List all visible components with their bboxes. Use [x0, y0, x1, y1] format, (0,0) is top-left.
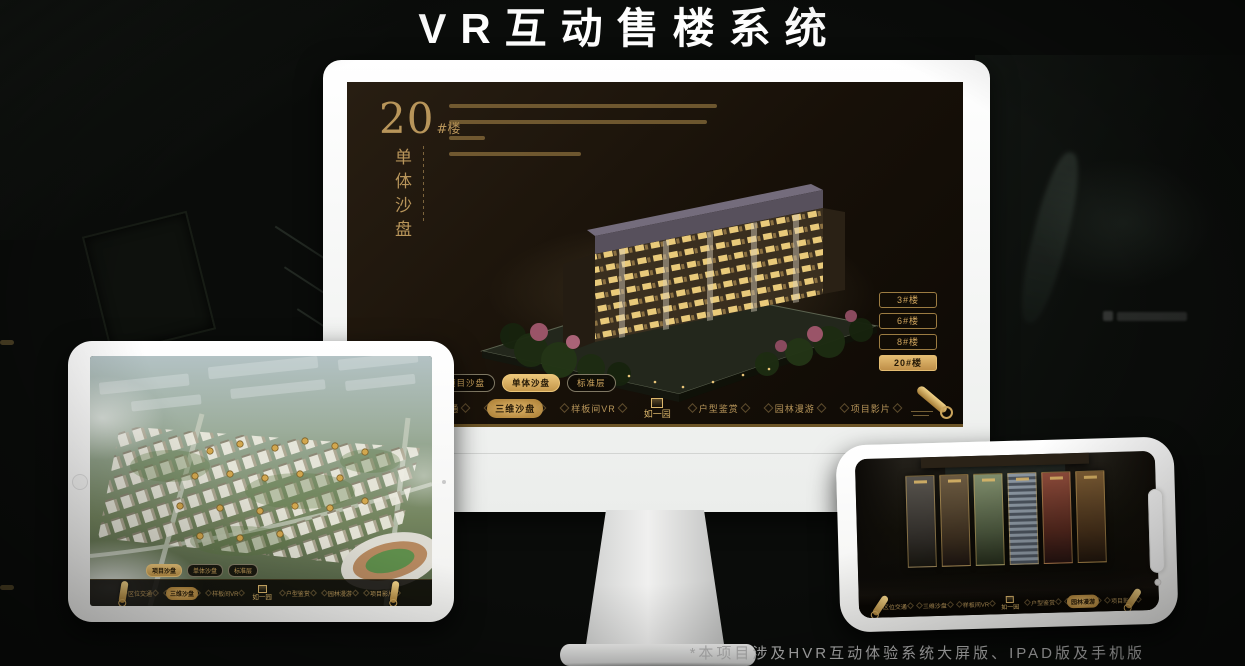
monitor-stand [585, 510, 725, 660]
bg-gold-glint [0, 340, 14, 345]
nav-item-location[interactable]: 区位交通 [124, 587, 156, 600]
camera-icon [442, 480, 446, 484]
mode-title-vertical: 单体沙盘 [389, 148, 414, 244]
phone-screen: 区位交通 三维沙盘 样板间VR 如一园 户型鉴赏 园林漫游 项目影片 [855, 451, 1159, 618]
notch-pill [1148, 488, 1165, 572]
gallery-card-2[interactable] [939, 474, 971, 567]
footnote-text: *本项目涉及HVR互动体验系统大屏版、IPAD版及手机版 [690, 642, 1145, 663]
tablet-bottom-nav-bar: 区位交通 三维沙盘 样板间VR 如一园 户型鉴赏 园林漫游 项目影片 [90, 579, 432, 606]
aerial-masterplan-render [90, 356, 432, 606]
project-logo: 如一园 [644, 398, 671, 419]
nav-item-floorplans[interactable]: 户型鉴赏 [691, 399, 747, 418]
tablet-screen: 项目沙盘 单体沙盘 标准层 区位交通 三维沙盘 样板间VR 如一园 户型鉴赏 园… [90, 356, 432, 606]
project-logo-text: 如一园 [1001, 604, 1019, 611]
tab-single-sandtable[interactable]: 单体沙盘 [502, 374, 560, 392]
seal-mark-icon [1006, 595, 1014, 602]
tablet-device: 项目沙盘 单体沙盘 标准层 区位交通 三维沙盘 样板间VR 如一园 户型鉴赏 园… [68, 341, 454, 622]
subtitle-decoration [423, 146, 424, 222]
gallery-card-1[interactable] [905, 475, 937, 568]
gallery-card-3[interactable] [973, 473, 1005, 566]
tab-standard-floor[interactable]: 标准层 [228, 564, 258, 577]
floor-button-3[interactable]: 3#楼 [879, 292, 937, 308]
nav-item-floorplans[interactable]: 户型鉴赏 [282, 587, 314, 600]
seal-mark-icon [651, 398, 663, 408]
tab-single-sandtable[interactable]: 单体沙盘 [187, 564, 223, 577]
nav-item-floorplans[interactable]: 户型鉴赏 [1027, 595, 1059, 609]
tab-standard-floor[interactable]: 标准层 [567, 374, 616, 392]
building-number: 20 [379, 94, 434, 143]
bg-aerial-photo [975, 55, 1245, 455]
mode-tabs: 项目沙盘 单体沙盘 标准层 [437, 374, 616, 392]
nav-item-garden-roam[interactable]: 园林漫游 [767, 399, 823, 418]
project-logo-text: 如一园 [644, 410, 671, 419]
floor-button-20[interactable]: 20#楼 [879, 355, 937, 371]
nav-item-3d-sandtable[interactable]: 三维沙盘 [487, 399, 543, 418]
nav-item-3d-sandtable[interactable]: 三维沙盘 [166, 587, 198, 600]
floor-button-group: 3#楼 6#楼 8#楼 20#楼 [879, 292, 937, 371]
nav-item-model-room-vr[interactable]: 样板间VR [563, 399, 624, 418]
floor-button-8[interactable]: 8#楼 [879, 334, 937, 350]
bg-brand-mark [1117, 312, 1187, 321]
camera-icon [1154, 578, 1161, 585]
building-render [467, 144, 897, 410]
nav-item-project-video[interactable]: 项目影片 [843, 399, 899, 418]
nav-item-garden-roam[interactable]: 园林漫游 [324, 587, 356, 600]
gallery-card-4[interactable] [1007, 472, 1039, 565]
nav-item-garden-roam[interactable]: 园林漫游 [1067, 594, 1099, 608]
bg-gold-glint [0, 585, 14, 590]
nav-item-model-room-vr[interactable]: 样板间VR [959, 597, 994, 611]
tab-project-sandtable[interactable]: 项目沙盘 [146, 564, 182, 577]
floor-button-6[interactable]: 6#楼 [879, 313, 937, 329]
project-logo: 如一园 [252, 585, 272, 602]
project-logo: 如一园 [1001, 595, 1019, 610]
tablet-mode-tabs: 项目沙盘 单体沙盘 标准层 [146, 564, 258, 577]
gallery-card-6[interactable] [1075, 470, 1107, 563]
page-title: VR互动售楼系统 [0, 0, 1245, 58]
gallery-card-5[interactable] [1041, 471, 1073, 564]
page: VR互动售楼系统 20#楼 单体沙盘 [0, 0, 1245, 666]
home-button[interactable] [72, 474, 88, 490]
nav-item-3d-sandtable[interactable]: 三维沙盘 [919, 598, 951, 612]
phone-device: 区位交通 三维沙盘 样板间VR 如一园 户型鉴赏 园林漫游 项目影片 [835, 436, 1178, 632]
project-logo-text: 如一园 [252, 595, 272, 602]
gold-scroll-icon[interactable] [911, 386, 955, 422]
nav-item-model-room-vr[interactable]: 样板间VR [208, 587, 242, 600]
seal-mark-icon [258, 585, 267, 593]
